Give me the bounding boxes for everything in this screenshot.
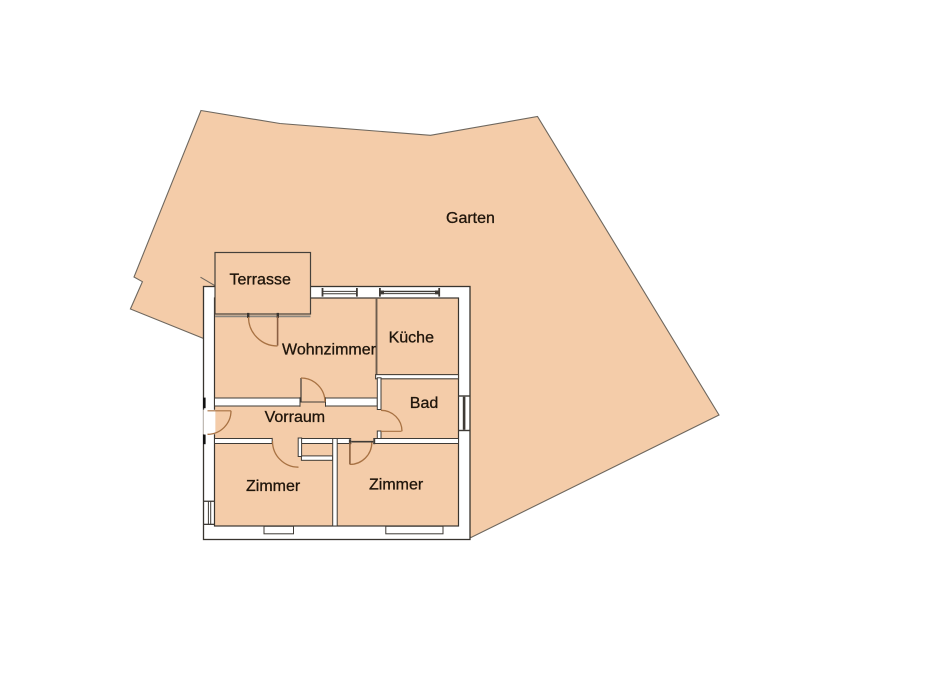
svg-text:Garten: Garten	[446, 210, 495, 227]
svg-text:Bad: Bad	[410, 395, 438, 412]
svg-text:Terrasse: Terrasse	[230, 272, 291, 289]
svg-text:Wohnzimmer: Wohnzimmer	[282, 342, 377, 359]
svg-text:Zimmer: Zimmer	[246, 478, 301, 495]
svg-text:Zimmer: Zimmer	[369, 477, 424, 494]
svg-text:Küche: Küche	[389, 329, 434, 346]
svg-text:Vorraum: Vorraum	[265, 409, 325, 426]
